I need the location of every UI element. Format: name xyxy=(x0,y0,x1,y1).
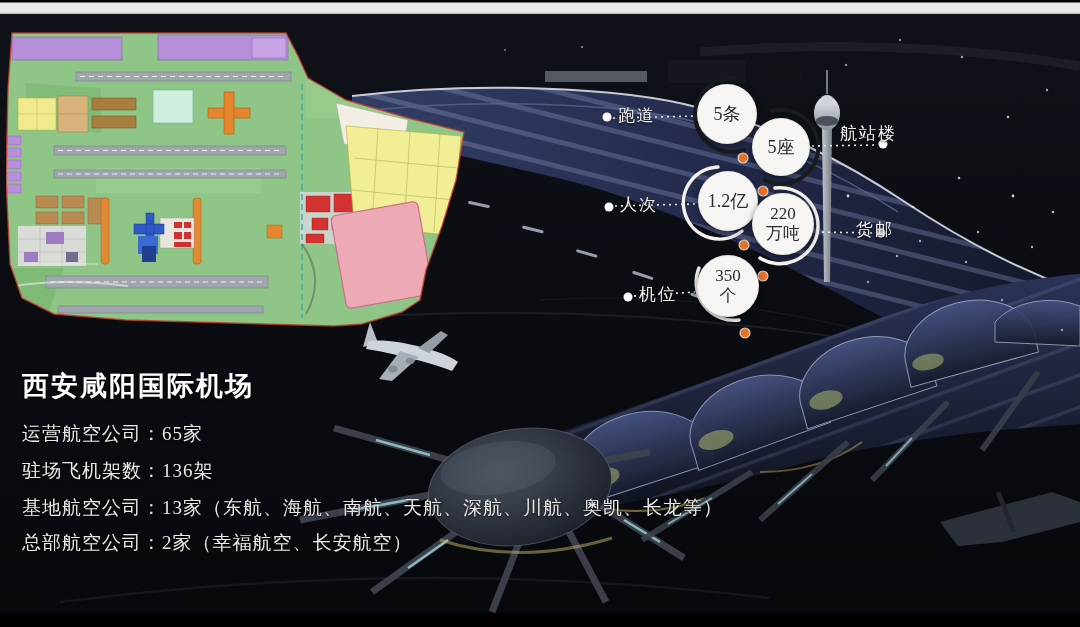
label-cargo: 货邮 xyxy=(856,218,894,241)
label-terminals: 航站楼 xyxy=(840,122,897,145)
fact-base-airlines: 基地航空公司：13家（东航、海航、南航、天航、深航、川航、奥凯、长龙等） xyxy=(22,495,723,521)
label-passengers: 人次 xyxy=(620,193,658,216)
stat-circle-runways: 5条 xyxy=(697,84,757,144)
stands-value: 350 xyxy=(715,266,741,286)
stat-circle-passengers: 1.2亿 xyxy=(698,171,758,231)
stat-circle-cargo: 220万吨 xyxy=(752,193,814,255)
fact-operating-airlines: 运营航空公司：65家 xyxy=(22,421,203,447)
passengers-value: 1.2亿 xyxy=(708,191,749,212)
runways-value: 5条 xyxy=(714,104,741,125)
label-stands: 机位 xyxy=(639,283,677,306)
fact-hq-airlines: 总部航空公司：2家（幸福航空、长安航空） xyxy=(22,530,413,556)
label-runways: 跑道 xyxy=(618,104,656,127)
page-title: 西安咸阳国际机场 xyxy=(22,368,254,404)
fact-based-aircraft: 驻场飞机架数：136架 xyxy=(22,458,214,484)
stat-circle-stands: 350个 xyxy=(697,255,759,317)
terminals-value: 5座 xyxy=(768,137,795,158)
stat-circle-terminals: 5座 xyxy=(752,118,810,176)
cargo-value: 220 xyxy=(766,204,800,224)
slide-airport-overview: 5条 5座 1.2亿 220万吨 350个 跑道 航站楼 人次 货邮 机位 西安… xyxy=(0,0,1080,627)
